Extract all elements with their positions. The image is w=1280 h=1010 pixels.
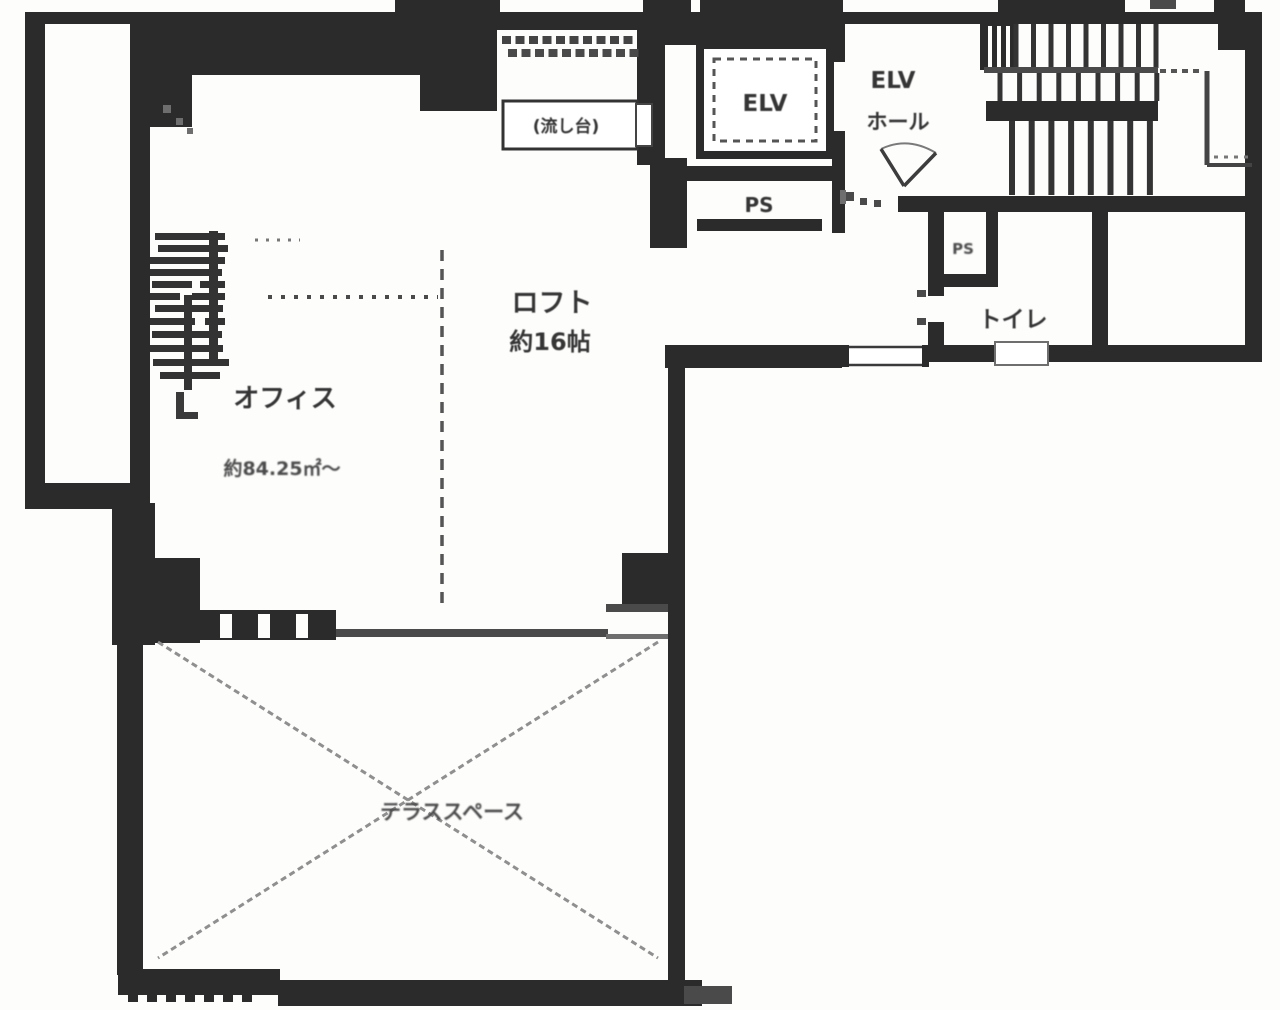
loft-ladder: [150, 231, 229, 419]
office-area-label: 約84.25㎡～: [223, 457, 340, 480]
terrace: テラススペース: [117, 608, 732, 1006]
kitchenette-alcove: (流し台): [420, 15, 665, 165]
main-room-walls: [622, 345, 929, 613]
ps-small-label: PS: [952, 240, 974, 258]
office-label: オフィス: [233, 384, 336, 414]
elevator-hall-label-2: ホール: [867, 110, 930, 134]
floor-plan-drawing: (流し台) ELV PS ELV ホール: [0, 0, 1280, 1010]
elevator-shaft-label: ELV: [742, 91, 787, 117]
stair-flight-lower: [1012, 121, 1150, 195]
hall-south-wall: [898, 196, 1262, 212]
loft-size-label: 約16帖: [509, 328, 590, 356]
floor-plan-page: (流し台) ELV PS ELV ホール: [0, 0, 1280, 1010]
sink-label: (流し台): [533, 116, 600, 137]
office-south-wall: [112, 503, 668, 645]
loft-dashed-outline: [255, 240, 442, 610]
loft-label: ロフト: [512, 288, 593, 319]
toilet-block: PS トイレ: [917, 210, 1262, 365]
toilet-label: トイレ: [979, 307, 1048, 333]
elevator-shaft: ELV PS: [650, 26, 845, 248]
south-window-threshold: [846, 347, 926, 365]
stair-flight-upper: [1016, 24, 1156, 68]
pipe-space-label: PS: [744, 193, 773, 217]
stair-landing: [986, 101, 1158, 121]
toilet-door-threshold: [995, 342, 1048, 365]
stair-flight-middle: [1000, 73, 1157, 101]
elevator-hall-label-1: ELV: [870, 68, 915, 94]
staircase: [980, 24, 1252, 195]
toilet-east-wall: [1092, 212, 1108, 345]
terrace-label: テラススペース: [380, 800, 524, 824]
stair-handrail: [1160, 71, 1252, 165]
